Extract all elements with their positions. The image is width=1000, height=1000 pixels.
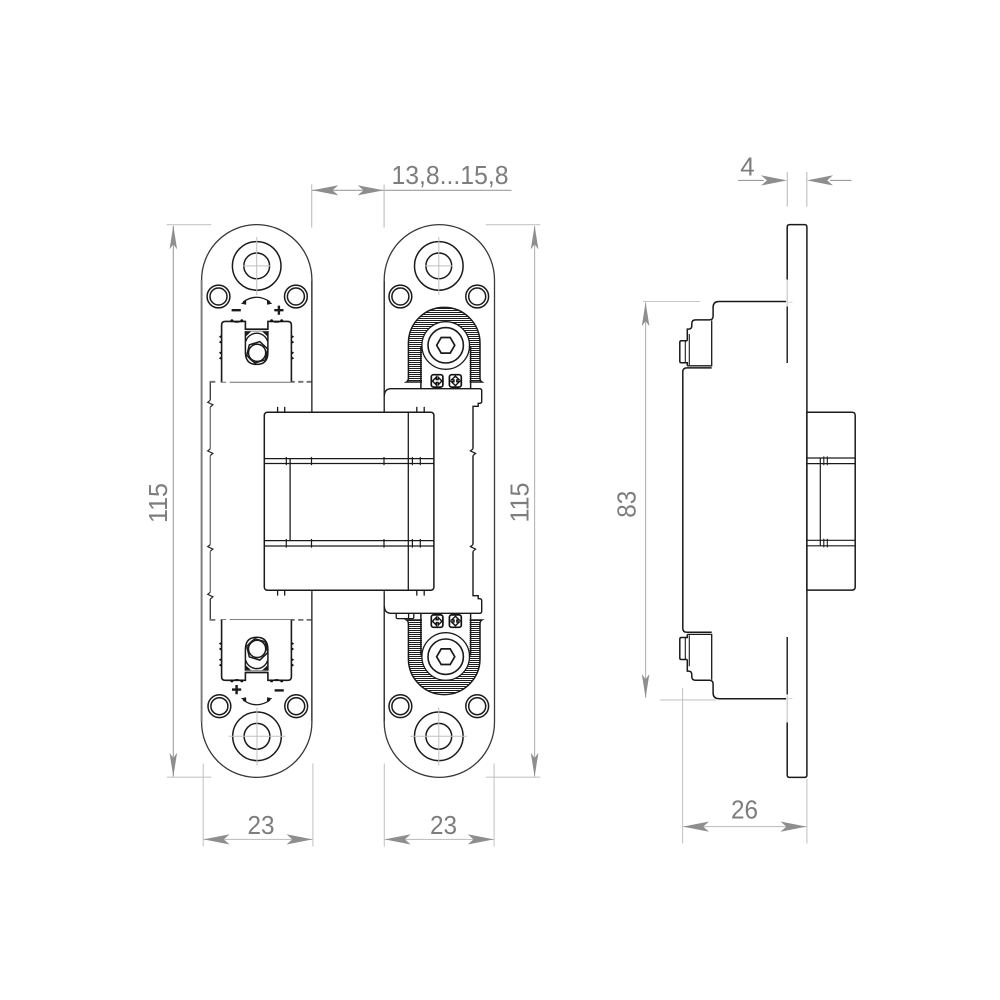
svg-text:13,8...15,8: 13,8...15,8 bbox=[392, 160, 509, 190]
svg-text:83: 83 bbox=[611, 491, 641, 518]
svg-text:115: 115 bbox=[143, 483, 173, 523]
svg-text:26: 26 bbox=[731, 795, 758, 825]
svg-text:23: 23 bbox=[248, 810, 275, 840]
svg-text:4: 4 bbox=[740, 152, 754, 182]
svg-text:23: 23 bbox=[430, 810, 457, 840]
svg-text:115: 115 bbox=[504, 483, 534, 523]
